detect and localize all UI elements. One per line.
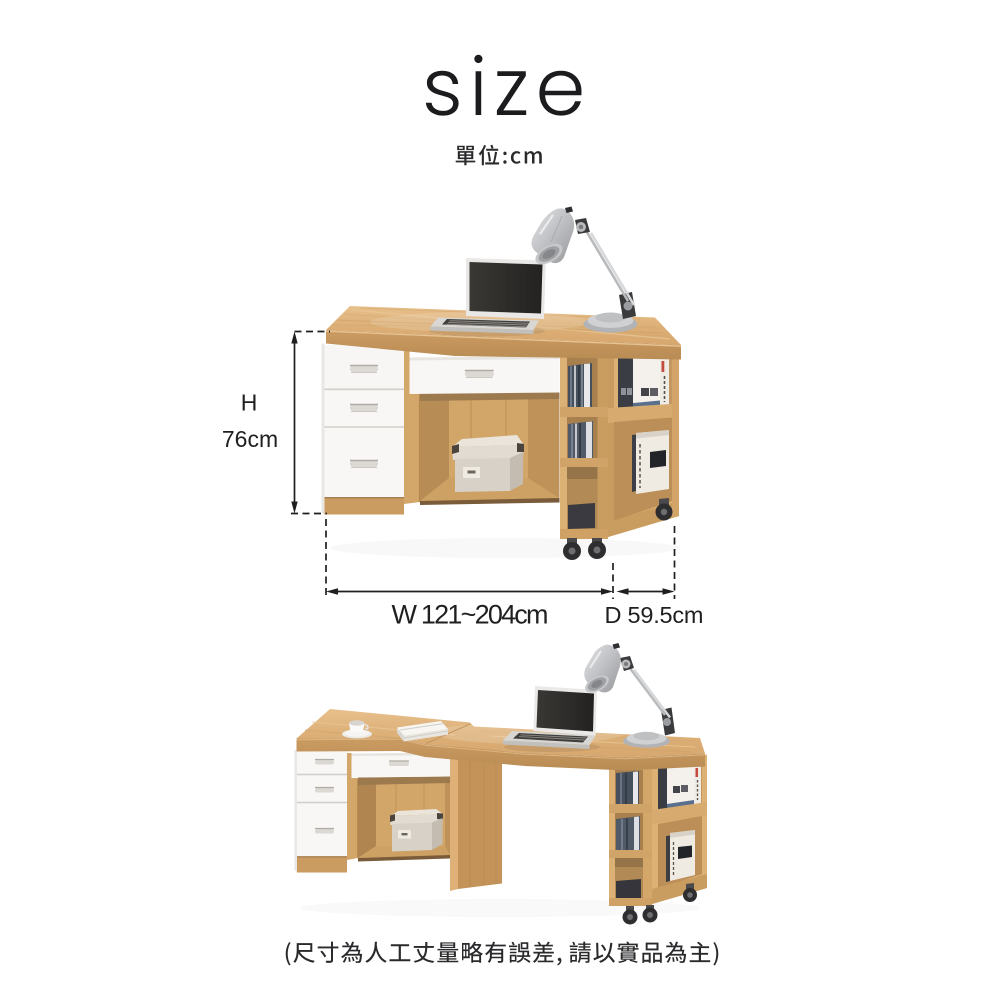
svg-text:76cm: 76cm	[222, 426, 278, 452]
svg-text:H: H	[241, 390, 258, 416]
svg-text:W 121~204cm: W 121~204cm	[392, 600, 549, 630]
svg-text:D 59.5cm: D 59.5cm	[605, 602, 704, 628]
